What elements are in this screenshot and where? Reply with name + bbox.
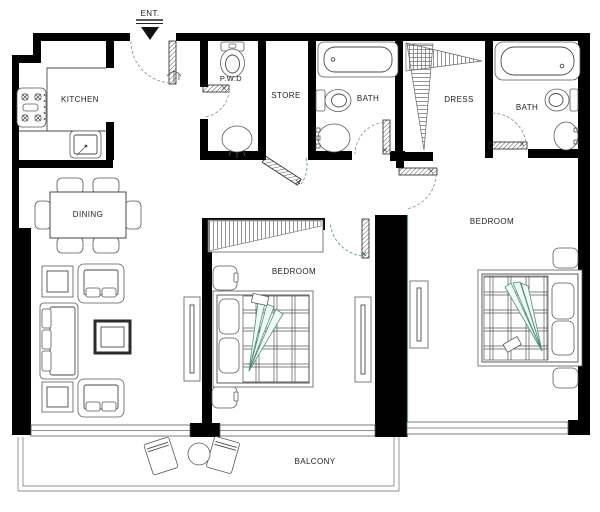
bed-bedroom1-symbol bbox=[213, 291, 313, 387]
window-living bbox=[31, 425, 190, 436]
side-table-2 bbox=[42, 382, 73, 412]
floor-plan-image: ENT. KITCHEN P.W.D STORE BATH DRESS BATH… bbox=[0, 0, 600, 512]
bathtub-bath2-symbol bbox=[495, 42, 580, 80]
armchair-2 bbox=[78, 379, 124, 417]
door-bath1 bbox=[355, 120, 390, 154]
nightstand-bedroom1-top bbox=[213, 266, 238, 290]
kitchen-sink-symbol bbox=[70, 131, 101, 158]
door-store bbox=[262, 156, 307, 185]
wardrobe-bedroom1-symbol bbox=[208, 220, 323, 252]
armchair-1 bbox=[78, 264, 124, 303]
door-pwd bbox=[203, 85, 229, 117]
room-label-store: STORE bbox=[271, 91, 300, 100]
toilet-pwd-symbol bbox=[221, 42, 245, 77]
floor-plan-svg: ENT. KITCHEN P.W.D STORE BATH DRESS BATH… bbox=[0, 0, 600, 512]
side-table-1 bbox=[42, 266, 73, 297]
room-label-bath1: BATH bbox=[357, 94, 379, 103]
tv-unit-bedroom1 bbox=[355, 297, 371, 382]
toilet-bath1-symbol bbox=[316, 90, 351, 112]
balcony-chair-left bbox=[144, 437, 179, 475]
bed-bedroom2-symbol bbox=[478, 270, 582, 366]
balcony-table bbox=[188, 443, 210, 465]
nightstand-bedroom1-bottom bbox=[212, 386, 238, 408]
stove-symbol bbox=[17, 88, 46, 127]
tv-unit-living bbox=[184, 297, 200, 381]
window-bedroom1 bbox=[220, 425, 375, 436]
room-label-bedroom2: BEDROOM bbox=[470, 217, 514, 226]
room-label-dining: DINING bbox=[73, 210, 103, 219]
nightstand-bedroom2-top bbox=[553, 248, 578, 268]
window-bedroom2 bbox=[407, 422, 568, 434]
balcony-chair-right bbox=[206, 436, 240, 474]
room-label-pwd: P.W.D bbox=[220, 74, 242, 83]
door-bedroom2 bbox=[399, 168, 437, 209]
room-label-bath2: BATH bbox=[516, 103, 538, 112]
entrance-label: ENT. bbox=[141, 9, 160, 18]
sink-bath1-symbol bbox=[316, 124, 350, 152]
door-bedroom1 bbox=[330, 219, 369, 258]
bathtub-bath1-symbol bbox=[318, 42, 398, 77]
room-label-bedroom1: BEDROOM bbox=[272, 267, 316, 276]
coffee-table bbox=[95, 321, 130, 353]
entrance-arrow bbox=[136, 20, 163, 40]
nightstand-bedroom2-bottom bbox=[553, 368, 578, 388]
room-label-dress: DRESS bbox=[444, 95, 474, 104]
sink-bath2-symbol bbox=[554, 122, 578, 150]
tv-unit-bedroom2 bbox=[410, 281, 428, 348]
room-label-balcony: BALCONY bbox=[294, 457, 335, 466]
sofa bbox=[40, 303, 78, 379]
toilet-bath2-symbol bbox=[545, 89, 578, 111]
room-label-kitchen: KITCHEN bbox=[61, 95, 99, 104]
